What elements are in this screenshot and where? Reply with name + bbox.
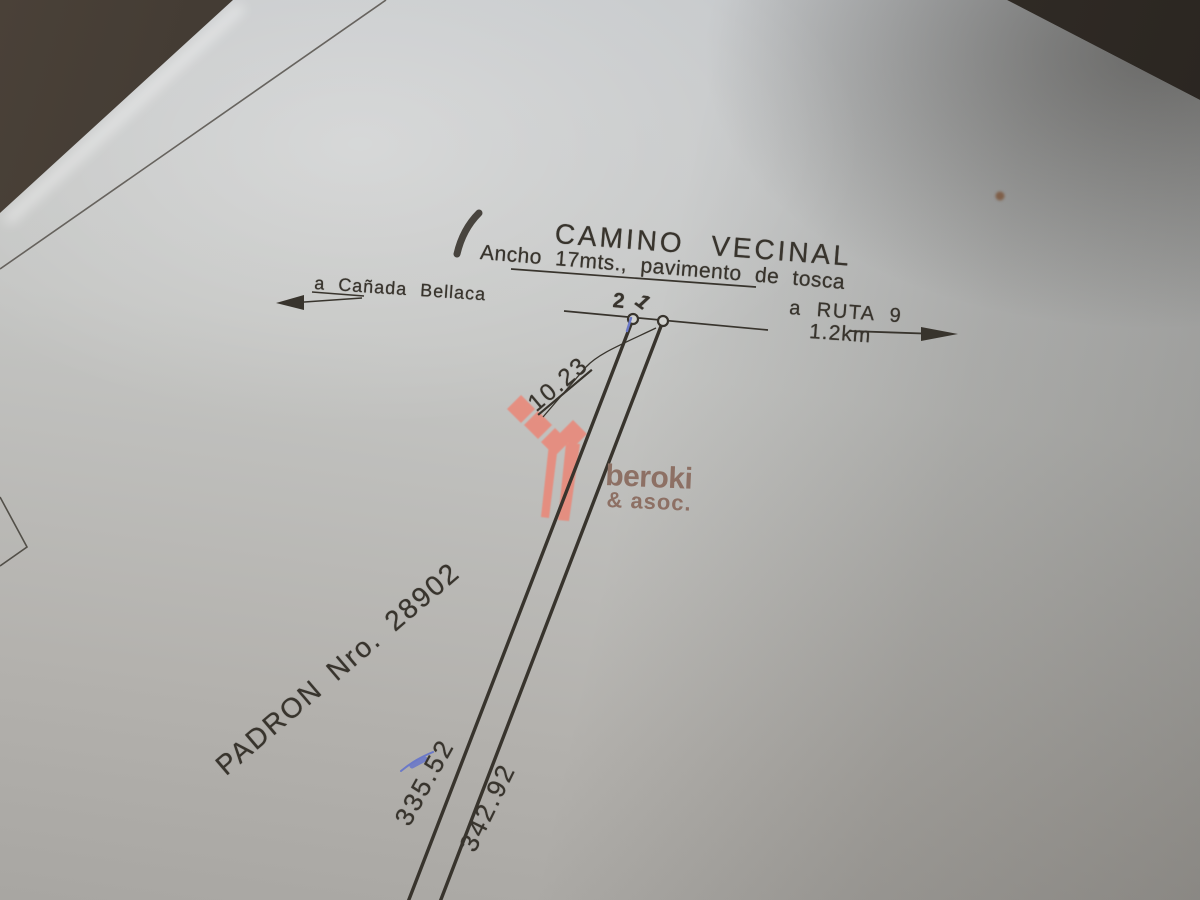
- red-speck: [996, 192, 1005, 201]
- ruta9-distance: 1.2km: [808, 321, 872, 346]
- paper-edge-highlight: [6, 6, 242, 222]
- point-label-2: 2: [612, 290, 626, 312]
- photo-of-survey-plan: CAMINO VECINAL Ancho 17mts., pavimento d…: [0, 0, 1200, 900]
- plan-border-line: [0, 0, 386, 269]
- ink-mark: [457, 213, 479, 254]
- watermark-suffix: & asoc.: [606, 489, 692, 515]
- stamp-corner-mark: [0, 497, 27, 566]
- paper-sheet: CAMINO VECINAL Ancho 17mts., pavimento d…: [0, 0, 1200, 900]
- survey-point-1: [658, 316, 668, 326]
- watermark-logo-mark: [507, 395, 587, 521]
- right-arrowhead: [921, 327, 958, 341]
- left-arrowhead: [276, 295, 304, 310]
- logo-bar-left: [541, 444, 558, 518]
- plan-drawing: [0, 0, 1200, 900]
